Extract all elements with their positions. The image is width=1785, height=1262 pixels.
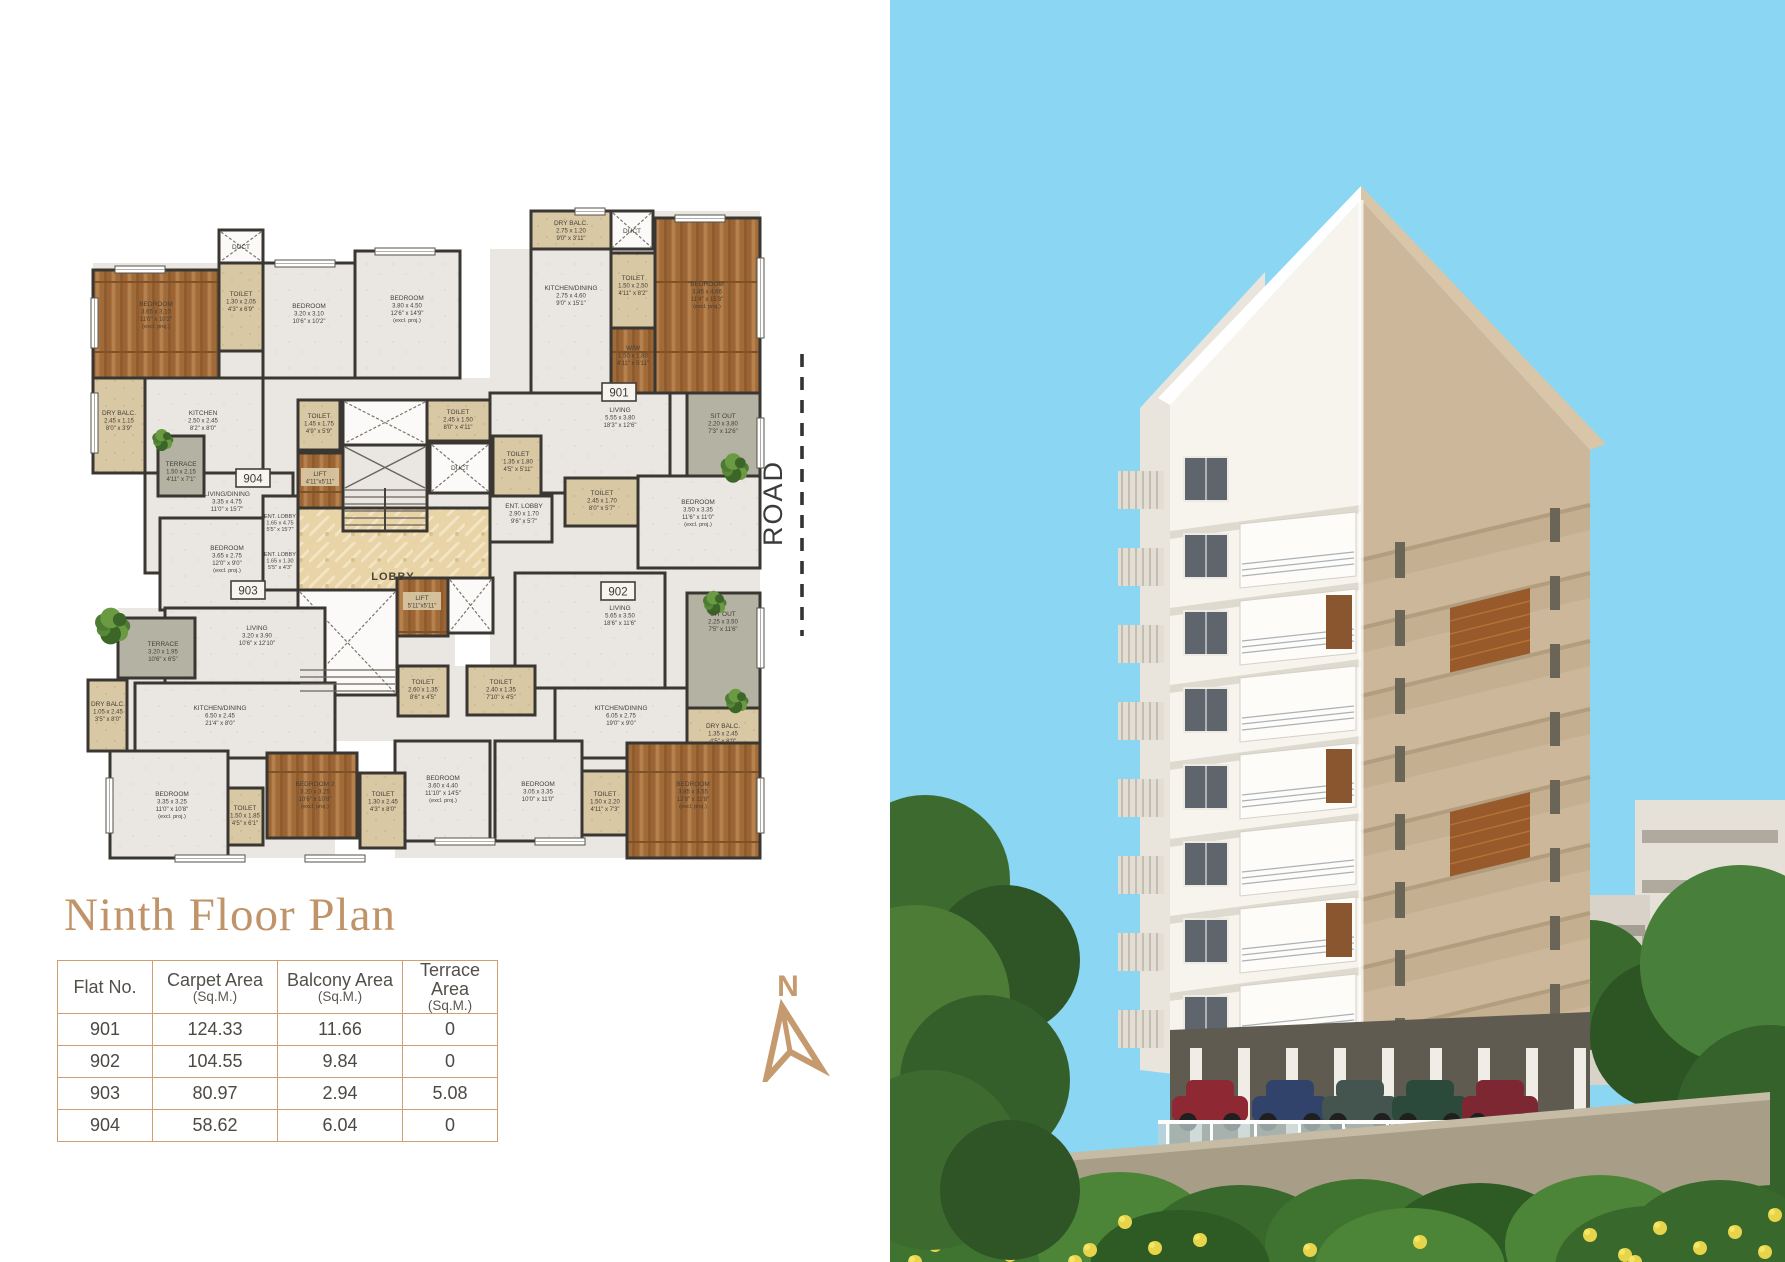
page-title: Ninth Floor Plan (64, 888, 396, 942)
north-arrow-icon (755, 1002, 822, 1079)
room-label: TOILET1.45 x 1.754'9" x 5'9" (304, 413, 334, 435)
plant-leaf (737, 692, 746, 701)
room-label: TERRACE1.50 x 2.154'11" x 7'1" (165, 461, 197, 483)
cell-terrace: 0 (403, 1014, 498, 1046)
room-label: TOILET2.40 x 1.357'10" x 4'5" (486, 679, 516, 701)
window-slit (1395, 746, 1405, 782)
room-label: TOILET2.45 x 1.708'0" x 5'7" (587, 490, 617, 512)
balcony (1240, 666, 1356, 742)
window-slit (1550, 576, 1560, 610)
car-cabin (1406, 1080, 1454, 1100)
window-slit (1395, 542, 1405, 578)
unit-badge-904: 904 (236, 469, 270, 487)
room-label: DRY BALC.1.35 x 2.454'5" x 8'0" (706, 723, 740, 745)
road-svg: ROAD (758, 350, 828, 640)
room-walls (343, 400, 427, 445)
flower-highlight (1084, 1244, 1090, 1250)
col-header-label: Balcony Area (278, 971, 402, 990)
room-bed903b (267, 753, 357, 838)
building-photo (890, 0, 1785, 1262)
flower-highlight (1654, 1222, 1660, 1228)
flower-highlight (1694, 1242, 1700, 1248)
unit-badge-number: 903 (238, 586, 257, 598)
car-cabin (1336, 1080, 1384, 1100)
room-label: DUCT (232, 244, 250, 251)
brown-panel (1326, 749, 1352, 803)
flower-highlight (1619, 1249, 1625, 1255)
flower-highlight (1769, 1209, 1775, 1215)
flower-highlight (1759, 1246, 1765, 1252)
col-header-sub: (Sq.M.) (153, 990, 277, 1004)
table-row: 90380.972.945.08 (58, 1078, 498, 1110)
window-slit (1550, 780, 1560, 814)
north-compass: N (752, 962, 862, 1082)
balcony (1240, 820, 1356, 896)
room-kitchen903 (135, 683, 335, 758)
window-slit (1395, 814, 1405, 850)
room-label: SIT OUT2.20 x 3.807'3" x 12'6" (708, 413, 738, 435)
col-header-label: Carpet Area (153, 971, 277, 990)
brochure-page: BEDROOM3.65 x 3.1011'0" x 10'2"(excl. pr… (0, 0, 1785, 1262)
room-label: TOILET2.60 x 1.358'6" x 4'5" (408, 679, 438, 701)
flower-highlight (1119, 1216, 1125, 1222)
col-header-flat: Flat No. (58, 961, 153, 1014)
floor-plan-svg: BEDROOM3.65 x 3.1011'0" x 10'2"(excl. pr… (75, 178, 770, 868)
col-header-label: Flat No. (58, 978, 152, 997)
tree-foliage (940, 1120, 1080, 1260)
plant-leaf (163, 432, 171, 440)
table-row: 90458.626.040 (58, 1110, 498, 1142)
room-kitchen901 (531, 249, 611, 409)
unit-badge-901: 901 (602, 383, 636, 401)
flower-highlight (1629, 1256, 1635, 1262)
lobby-label: LOBBY (371, 571, 415, 583)
window-slit (1550, 712, 1560, 746)
room-label: ENT. LOBBY1.65 x 4.755'5" x 15'7" (264, 514, 296, 533)
balcony (1240, 512, 1356, 588)
brown-panel (1326, 595, 1352, 649)
window-slit (1395, 610, 1405, 646)
room-label: TOILET1.50 x 2.504'11" x 8'2" (618, 275, 648, 297)
table-row: 902104.559.840 (58, 1046, 498, 1078)
window-slit (1550, 508, 1560, 542)
cell-carpet: 124.33 (153, 1014, 278, 1046)
unit-badge-number: 901 (609, 388, 628, 400)
window-slit (1395, 882, 1405, 918)
room-stairTop (343, 400, 427, 445)
flower-highlight (1069, 1256, 1075, 1262)
cell-terrace: 5.08 (403, 1078, 498, 1110)
room-corridor (263, 496, 298, 590)
plant-leaf (113, 613, 127, 627)
room-label: TOILET1.30 x 2.054'3" x 6'9" (226, 291, 256, 313)
cell-carpet: 58.62 (153, 1110, 278, 1142)
table-row: 901124.3311.660 (58, 1014, 498, 1046)
room-label: ENT. LOBBY1.65 x 1.305'5" x 4'3" (264, 552, 296, 571)
room-walls (515, 573, 665, 688)
flower-highlight (1194, 1234, 1200, 1240)
window-slit (1395, 678, 1405, 714)
room-living902 (515, 573, 665, 688)
unit-badge-number: 902 (608, 587, 627, 599)
room-label: DUCT (623, 228, 641, 235)
unit-badge-902: 902 (601, 582, 635, 600)
car-cabin (1266, 1080, 1314, 1100)
room-walls (263, 496, 298, 590)
flower-highlight (1149, 1242, 1155, 1248)
window-slit (1550, 916, 1560, 950)
compass-svg: N (752, 962, 862, 1082)
col-header-carpet: Carpet Area (Sq.M.) (153, 961, 278, 1014)
cell-balcony: 9.84 (278, 1046, 403, 1078)
table-header-row: Flat No. Carpet Area (Sq.M.) Balcony Are… (58, 961, 498, 1014)
room-label: BEDROOM3.20 x 3.1010'6" x 10'2" (292, 303, 326, 325)
window-slit (1395, 950, 1405, 986)
building-render (890, 0, 1785, 1262)
bg-window-band (1642, 830, 1778, 843)
room-label: TOILET1.35 x 1.804'5" x 5'11" (503, 451, 533, 473)
room-drybalc903 (88, 680, 127, 751)
cell-balcony: 2.94 (278, 1078, 403, 1110)
col-header-sub: (Sq.M.) (278, 990, 402, 1004)
window-slit (1550, 848, 1560, 882)
flower-highlight (1414, 1236, 1420, 1242)
room-label: TOILET1.50 x 2.204'11" x 7'3" (590, 791, 620, 813)
room-label: TERRACE3.20 x 1.9510'6" x 6'5" (147, 641, 179, 663)
window-slit (1550, 644, 1560, 678)
room-walls (267, 753, 357, 838)
unit-badge-number: 904 (243, 474, 263, 486)
col-header-balcony: Balcony Area (Sq.M.) (278, 961, 403, 1014)
col-header-sub: (Sq.M.) (403, 999, 497, 1013)
cell-balcony: 6.04 (278, 1110, 403, 1142)
cell-terrace: 0 (403, 1046, 498, 1078)
flower-highlight (1304, 1244, 1310, 1250)
cell-flat: 903 (58, 1078, 153, 1110)
room-label: TOILET1.50 x 1.854'5" x 6'1" (230, 805, 260, 827)
flower-highlight (1584, 1229, 1590, 1235)
room-label: SIT OUT2.25 x 3.507'5" x 11'6" (708, 611, 738, 633)
plan-rooms (88, 211, 760, 858)
room-walls (135, 683, 335, 758)
car-cabin (1476, 1080, 1524, 1100)
room-label: BEDROOM3.05 x 3.3510'0" x 11'0" (521, 781, 555, 803)
car-cabin (1186, 1080, 1234, 1100)
room-label: DRY BALC.1.05 x 2.453'5" x 8'0" (91, 701, 125, 723)
brown-panel (1326, 903, 1352, 957)
cell-balcony: 11.66 (278, 1014, 403, 1046)
window-slit (1550, 984, 1560, 1018)
room-duct2 (448, 578, 493, 633)
cell-flat: 902 (58, 1046, 153, 1078)
plant-leaf (735, 457, 746, 468)
col-header-terrace: Terrace Area (Sq.M.) (403, 961, 498, 1014)
road-marker: ROAD (758, 350, 828, 640)
flower-highlight (909, 1256, 915, 1262)
cell-flat: 901 (58, 1014, 153, 1046)
flower-highlight (1729, 1226, 1735, 1232)
room-label: DRY BALC.2.45 x 1.158'0" x 3'9" (102, 410, 136, 432)
room-walls (531, 249, 611, 409)
unit-badge-903: 903 (231, 581, 265, 599)
room-label: KITCHEN2.50 x 2.458'2" x 8'0" (188, 410, 218, 432)
cell-flat: 904 (58, 1110, 153, 1142)
north-label: N (777, 970, 799, 1003)
road-label: ROAD (758, 460, 788, 546)
room-label: DRY BALC.2.75 x 1.209'0" x 3'11" (554, 220, 588, 242)
cell-carpet: 104.55 (153, 1046, 278, 1078)
col-header-label: Terrace Area (403, 961, 497, 999)
floor-plan: BEDROOM3.65 x 3.1011'0" x 10'2"(excl. pr… (75, 178, 770, 868)
room-label: TOILET2.45 x 1.508'0" x 4'11" (443, 409, 473, 431)
area-table: Flat No. Carpet Area (Sq.M.) Balcony Are… (57, 960, 498, 1142)
room-walls (88, 680, 127, 751)
plant-leaf (715, 594, 724, 603)
cell-terrace: 0 (403, 1110, 498, 1142)
room-label: DUCT (451, 465, 469, 472)
cell-carpet: 80.97 (153, 1078, 278, 1110)
room-label: TOILET1.30 x 2.454'3" x 8'0" (368, 791, 398, 813)
